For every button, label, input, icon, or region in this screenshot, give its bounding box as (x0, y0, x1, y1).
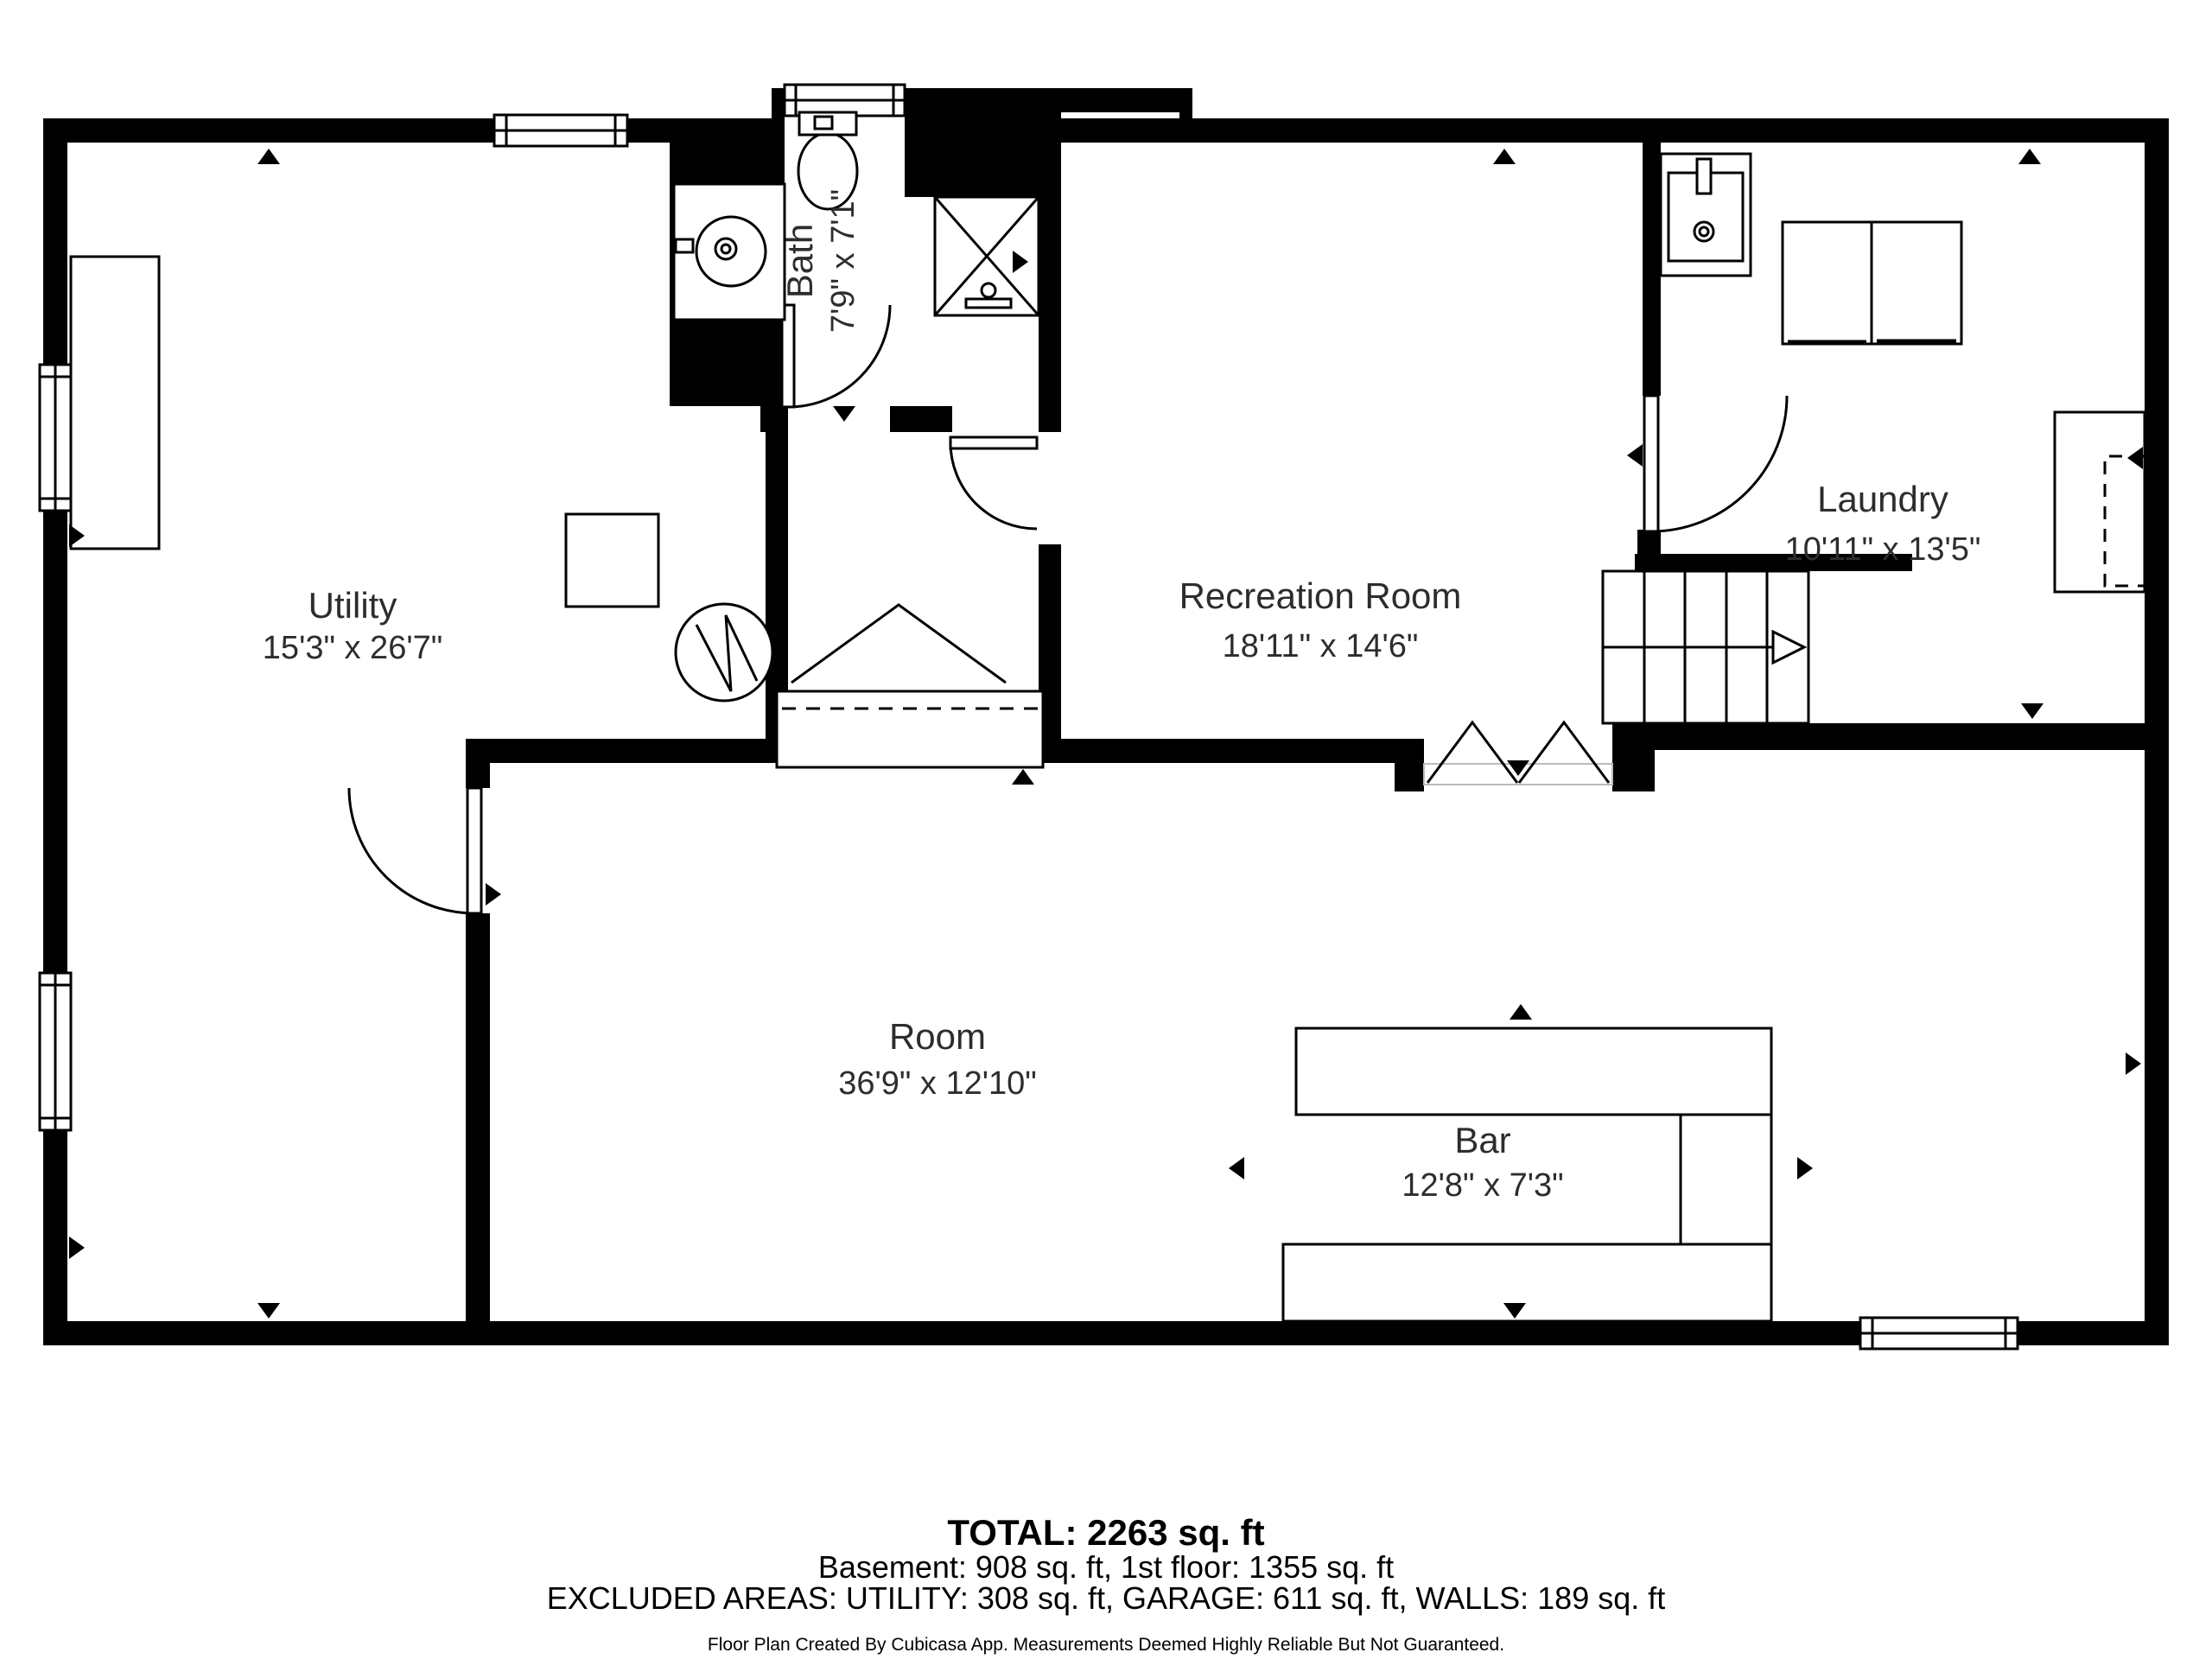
room-north-wall-east (1043, 739, 1397, 763)
bath-west-closet-wall (766, 406, 788, 739)
floor-plan-page: Utility 15'3" x 26'7" Bath 7'9" x 7'1" R… (0, 0, 2212, 1659)
wall-above-shower (905, 112, 1061, 197)
bar-label: Bar (1454, 1120, 1510, 1160)
utility-east-wall-lower (466, 913, 490, 1321)
recreation-room-dims: 18'11" x 14'6" (1223, 628, 1419, 664)
wall-marker-right-icon (69, 1236, 85, 1259)
bath-south-wall-left (760, 406, 786, 432)
laundry-sink-icon (1661, 154, 1751, 276)
wall-marker-right-icon (2126, 1052, 2141, 1075)
room-dims: 36'9" x 12'10" (838, 1065, 1037, 1102)
landing-south-wall (1639, 723, 2145, 750)
laundry-dims: 10'11" x 13'5" (1785, 531, 1981, 568)
doors (349, 305, 1787, 913)
storage-cabinet-icon (71, 257, 159, 549)
washer-icon (1783, 222, 1872, 344)
bifold-door-icon (791, 605, 1006, 683)
wall-marker-left-icon (1229, 1157, 1244, 1179)
laundry-door (1644, 396, 1787, 531)
fixtures (71, 112, 2145, 1321)
bath-bump-right-jog (1179, 88, 1192, 143)
utility-dims: 15'3" x 26'7" (263, 630, 442, 666)
footer-total: TOTAL: 2263 sq. ft (947, 1512, 1264, 1553)
room-label: Room (889, 1016, 986, 1057)
hearth-box (777, 691, 1043, 767)
laundry-west-wall-lower (1643, 531, 1661, 554)
window-left-upper (40, 365, 71, 511)
laundry-label: Laundry (1817, 479, 1948, 519)
wall-marker-up-icon (257, 149, 280, 164)
wall-marker-up-icon (2018, 149, 2041, 164)
wall-marker-left-icon (1627, 444, 1643, 467)
staircase (1603, 571, 1808, 723)
hall-closet-door (950, 437, 1037, 529)
wall-marker-down-icon (833, 406, 855, 422)
wall-marker-up-icon (1510, 1004, 1532, 1020)
wall-marker-right-icon (1797, 1157, 1813, 1179)
utility-door (349, 788, 481, 913)
wall-marker-down-icon (2021, 703, 2044, 719)
footer: TOTAL: 2263 sq. ft Basement: 908 sq. ft,… (547, 1512, 1666, 1655)
bathroom-vanity-sink-icon (674, 184, 785, 320)
wall-marker-up-icon (1012, 769, 1034, 785)
bath-dims: 7'9" x 7'1" (825, 189, 861, 333)
left-wall (43, 118, 67, 1345)
desk-icon (2055, 412, 2145, 592)
dryer-icon (1872, 222, 1961, 344)
right-wall (2145, 118, 2169, 1345)
bottom-wall (43, 1321, 2169, 1345)
window-bottom-right (1860, 1318, 2018, 1349)
window-top-left (494, 115, 627, 146)
footer-disclaimer: Floor Plan Created By Cubicasa App. Meas… (708, 1635, 1504, 1655)
footer-floors: Basement: 908 sq. ft, 1st floor: 1355 sq… (818, 1549, 1394, 1585)
top-wall (43, 118, 2169, 143)
utility-east-wall-upper (466, 763, 490, 788)
opening-west-stub (1395, 739, 1424, 791)
floor-plan-canvas: Utility 15'3" x 26'7" Bath 7'9" x 7'1" R… (0, 0, 2212, 1659)
laundry-west-wall-upper (1643, 143, 1661, 396)
wall-marker-right-icon (486, 883, 501, 906)
recreation-room-label: Recreation Room (1179, 575, 1462, 616)
bath-south-wall-right (890, 406, 952, 432)
shower-icon (935, 197, 1039, 315)
bath-bump-left-jog (772, 88, 785, 143)
bifold-closet (777, 605, 1043, 767)
wall-marker-down-icon (257, 1303, 280, 1319)
window-left-lower (40, 973, 71, 1130)
furnace-icon (566, 514, 658, 607)
room-north-wall-west (466, 739, 777, 763)
bath-label: Bath (779, 224, 820, 298)
water-heater-icon (676, 604, 772, 701)
bath-east-wall (1039, 197, 1061, 432)
footer-excluded: EXCLUDED AREAS: UTILITY: 308 sq. ft, GAR… (547, 1580, 1666, 1616)
bar-dims: 12'8" x 7'3" (1402, 1167, 1563, 1204)
utility-label: Utility (308, 585, 397, 626)
wall-marker-up-icon (1493, 149, 1516, 164)
